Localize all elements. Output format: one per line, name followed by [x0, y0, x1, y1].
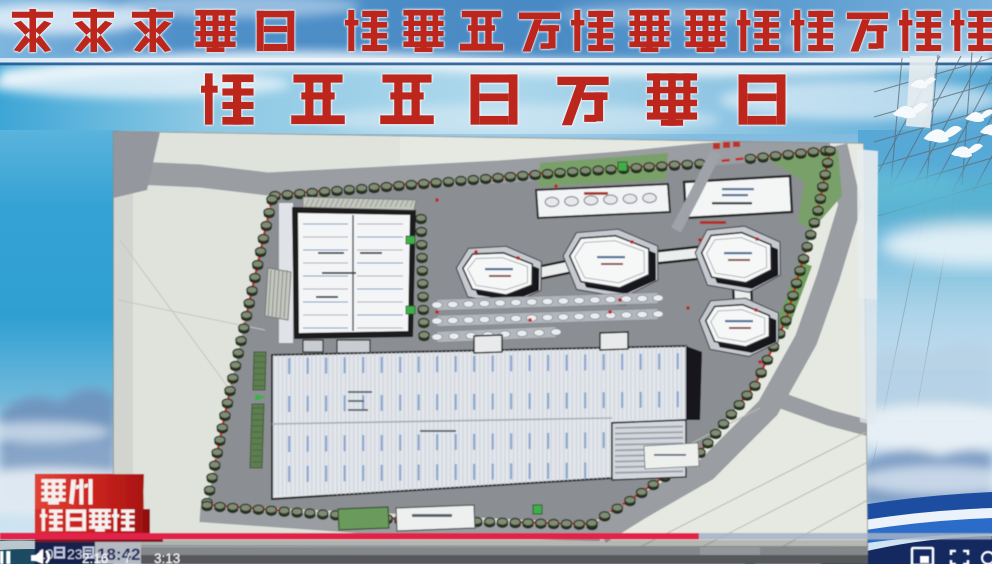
- svg-text:2:16: 2:16: [82, 551, 108, 564]
- svg-text:/: /: [126, 551, 130, 564]
- svg-text:3:13: 3:13: [154, 551, 180, 564]
- svg-text:23: 23: [67, 546, 83, 562]
